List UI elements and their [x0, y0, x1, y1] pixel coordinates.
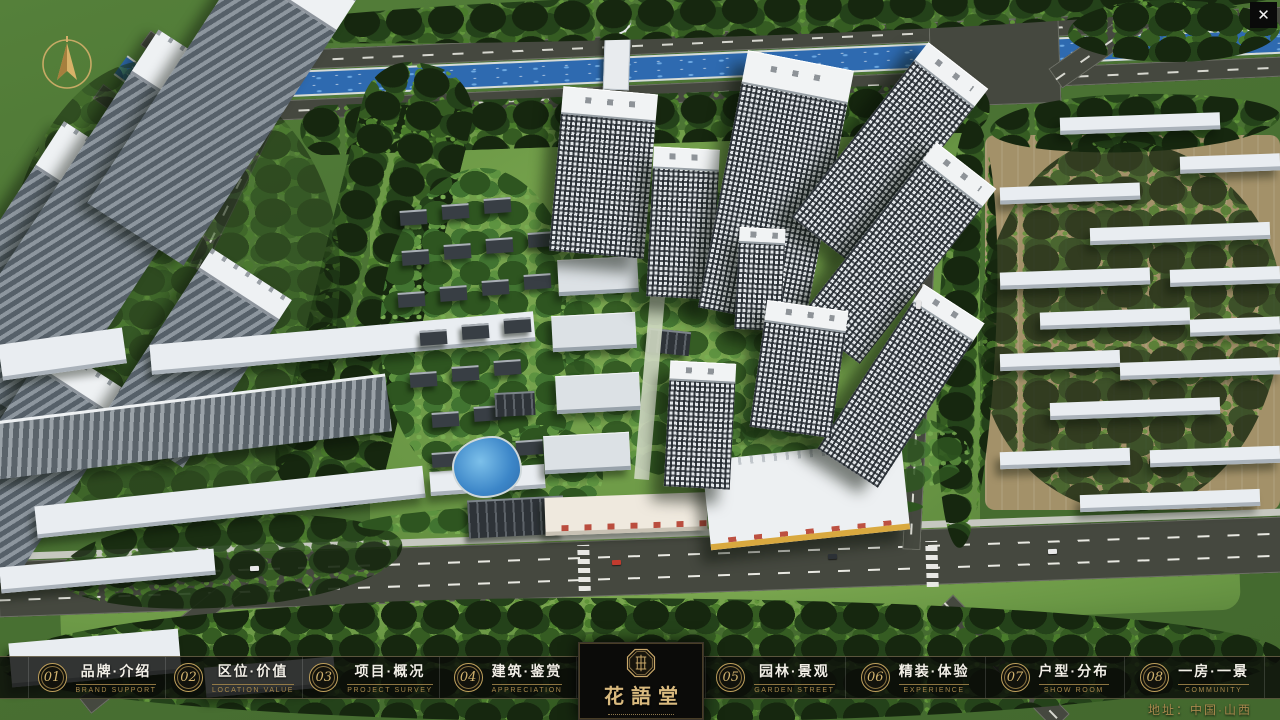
retail-street	[544, 492, 707, 536]
crosswalk	[577, 545, 591, 591]
nav-badge-02: 02	[174, 663, 203, 692]
nav-label-en: SHOW ROOM	[1039, 684, 1110, 694]
residential-tower	[664, 360, 737, 489]
masterplan-render	[0, 0, 1280, 720]
villa-roof	[442, 203, 470, 220]
nav-number: 01	[44, 670, 61, 685]
villa-roof	[482, 279, 510, 296]
nav-label-zh: 建筑·鉴赏	[492, 661, 563, 681]
nav-item-landscape[interactable]: 05 园林·景观 GARDEN STREET	[705, 657, 845, 698]
villa-roof	[462, 323, 490, 340]
nav-label-en: LOCATION VALUE	[212, 684, 294, 694]
nav-badge-01: 01	[38, 663, 67, 692]
nav-label-zh: 区位·价值	[218, 661, 289, 681]
nav-number: 03	[315, 670, 332, 685]
nav-label-en: EXPERIENCE	[899, 684, 970, 694]
presentation-stage: ✕ 01 品牌·介绍 BRAND SUPPORT 02 区位·价值 LOCATI…	[0, 0, 1280, 720]
nav-group-right: 05 园林·景观 GARDEN STREET 06 精装·体验 EXPERIEN…	[705, 657, 1265, 698]
nav-text: 户型·分布 SHOW ROOM	[1039, 661, 1110, 694]
nav-label-zh: 户型·分布	[1039, 661, 1110, 681]
residential-tower	[549, 86, 658, 259]
lowrise-building	[555, 372, 641, 414]
vehicle	[828, 554, 837, 559]
nav-text: 区位·价值 LOCATION VALUE	[212, 661, 294, 694]
nav-badge-03: 03	[309, 663, 338, 692]
clubhouse-roof	[494, 391, 535, 417]
villa-roof	[494, 359, 522, 376]
nav-badge-06: 06	[861, 663, 890, 692]
tower-facade	[664, 380, 735, 489]
nav-label-en: GARDEN STREET	[754, 684, 834, 694]
nav-item-interior[interactable]: 06 精装·体验 EXPERIENCE	[845, 657, 985, 698]
nav-text: 一房·一景 COMMUNITY	[1178, 661, 1249, 694]
nav-item-location[interactable]: 02 区位·价值 LOCATION VALUE	[165, 657, 302, 698]
lowrise-building	[557, 256, 639, 296]
swimming-pool	[452, 436, 522, 498]
nav-label-zh: 品牌·介绍	[81, 661, 152, 681]
nav-number: 04	[460, 670, 477, 685]
close-icon: ✕	[1257, 7, 1270, 24]
nav-badge-05: 05	[716, 663, 745, 692]
project-title: 花語堂	[597, 680, 685, 709]
villa-roof	[504, 317, 532, 334]
logo-seal-icon	[626, 648, 656, 678]
vehicle	[250, 566, 259, 571]
nav-item-floorplan[interactable]: 07 户型·分布 SHOW ROOM	[985, 657, 1125, 698]
compass-icon	[38, 34, 96, 92]
nav-label-zh: 园林·景观	[759, 661, 830, 681]
nav-badge-04: 04	[454, 663, 483, 692]
nav-item-project[interactable]: 03 项目·概况 PROJECT SURVEY	[302, 657, 439, 698]
nav-label-en: BRAND SUPPORT	[76, 684, 157, 694]
nav-number: 02	[180, 670, 197, 685]
villa-roof	[400, 209, 428, 226]
nav-badge-08: 08	[1140, 663, 1169, 692]
nav-item-brand[interactable]: 01 品牌·介绍 BRAND SUPPORT	[28, 657, 165, 698]
nav-number: 06	[867, 670, 884, 685]
tower-facade	[549, 114, 656, 259]
nav-text: 品牌·介绍 BRAND SUPPORT	[76, 661, 157, 694]
villa-roof	[486, 237, 514, 254]
warehouse-building	[1180, 153, 1280, 173]
vehicle	[612, 560, 621, 565]
logo-subtitle-rule	[608, 714, 674, 715]
villa-roof	[420, 329, 448, 346]
crosswalk	[925, 541, 939, 587]
villa-roof	[452, 365, 480, 382]
vehicle	[1048, 549, 1057, 554]
nav-label-en: APPRECIATION	[492, 684, 563, 694]
nav-label-zh: 精装·体验	[899, 661, 970, 681]
villa-roof	[432, 411, 460, 428]
nav-label-en: PROJECT SURVEY	[347, 684, 433, 694]
villa-roof	[402, 249, 430, 266]
address-text: 地址：中国·山西	[1148, 701, 1252, 718]
villa-roof	[524, 273, 552, 290]
warehouse-building	[1190, 316, 1280, 336]
lowrise-building	[543, 432, 631, 474]
tower-facade	[749, 322, 845, 438]
villa-roof	[398, 291, 426, 308]
nav-item-architecture[interactable]: 04 建筑·鉴赏 APPRECIATION	[439, 657, 577, 698]
nav-text: 园林·景观 GARDEN STREET	[754, 661, 834, 694]
project-logo-panel[interactable]: 花語堂	[578, 642, 704, 720]
nav-label-en: COMMUNITY	[1178, 684, 1249, 694]
villa-roof	[440, 285, 468, 302]
nav-text: 项目·概况 PROJECT SURVEY	[347, 661, 433, 694]
villa-roof	[484, 197, 512, 214]
nav-number: 07	[1007, 670, 1024, 685]
nav-label-zh: 项目·概况	[355, 661, 426, 681]
villa-roof	[516, 439, 544, 456]
nav-number: 05	[722, 670, 739, 685]
nav-group-left: 01 品牌·介绍 BRAND SUPPORT 02 区位·价值 LOCATION…	[28, 657, 577, 698]
vehicle	[916, 300, 921, 309]
nav-badge-07: 07	[1001, 663, 1030, 692]
close-button[interactable]: ✕	[1250, 2, 1277, 28]
villa-roof	[444, 243, 472, 260]
nav-text: 建筑·鉴赏 APPRECIATION	[492, 661, 563, 694]
nav-text: 精装·体验 EXPERIENCE	[899, 661, 970, 694]
lowrise-building	[551, 312, 637, 352]
nav-number: 08	[1147, 670, 1164, 685]
nav-item-scenery[interactable]: 08 一房·一景 COMMUNITY	[1124, 657, 1265, 698]
nav-label-zh: 一房·一景	[1178, 661, 1249, 681]
villa-roof	[410, 371, 438, 388]
